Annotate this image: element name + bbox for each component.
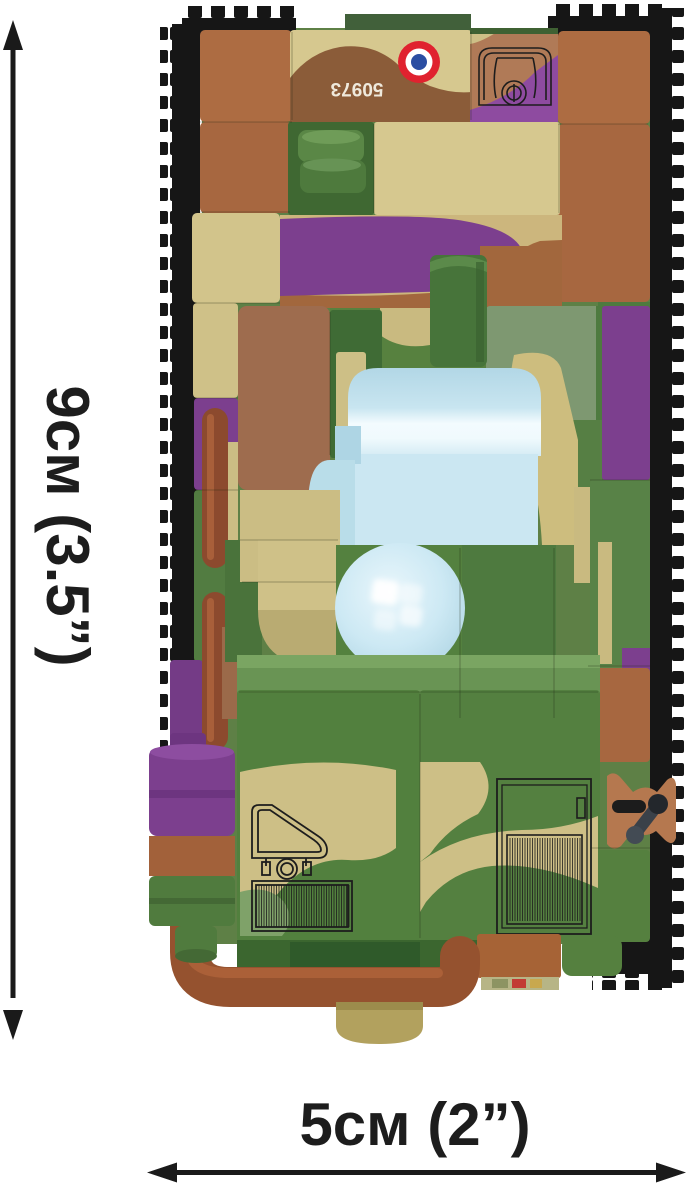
svg-text:5см (2”): 5см (2”) (299, 1091, 530, 1158)
svg-text:9см (3.5”): 9см (3.5”) (34, 385, 101, 666)
svg-text:50973: 50973 (331, 78, 384, 99)
